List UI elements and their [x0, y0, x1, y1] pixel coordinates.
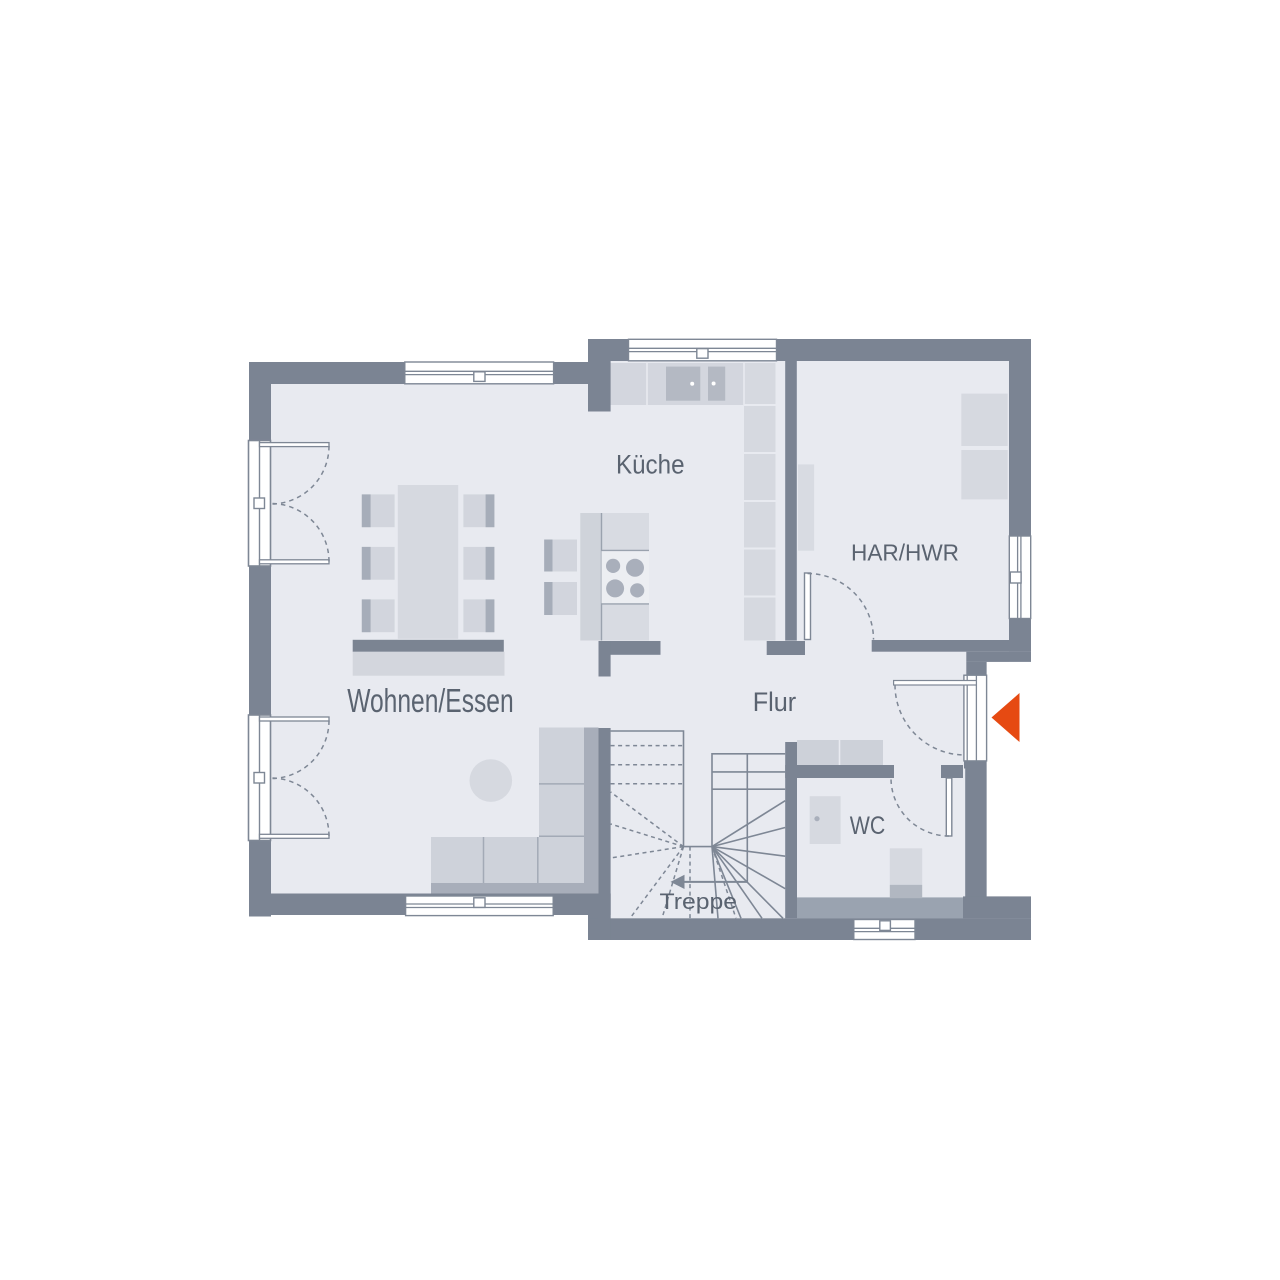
svg-text:HAR/HWR: HAR/HWR — [851, 540, 959, 566]
svg-text:Flur: Flur — [753, 687, 797, 717]
svg-text:WC: WC — [850, 812, 886, 840]
svg-text:Wohnen/Essen: Wohnen/Essen — [347, 682, 514, 719]
svg-text:Küche: Küche — [616, 450, 685, 480]
svg-text:Treppe: Treppe — [660, 889, 738, 914]
